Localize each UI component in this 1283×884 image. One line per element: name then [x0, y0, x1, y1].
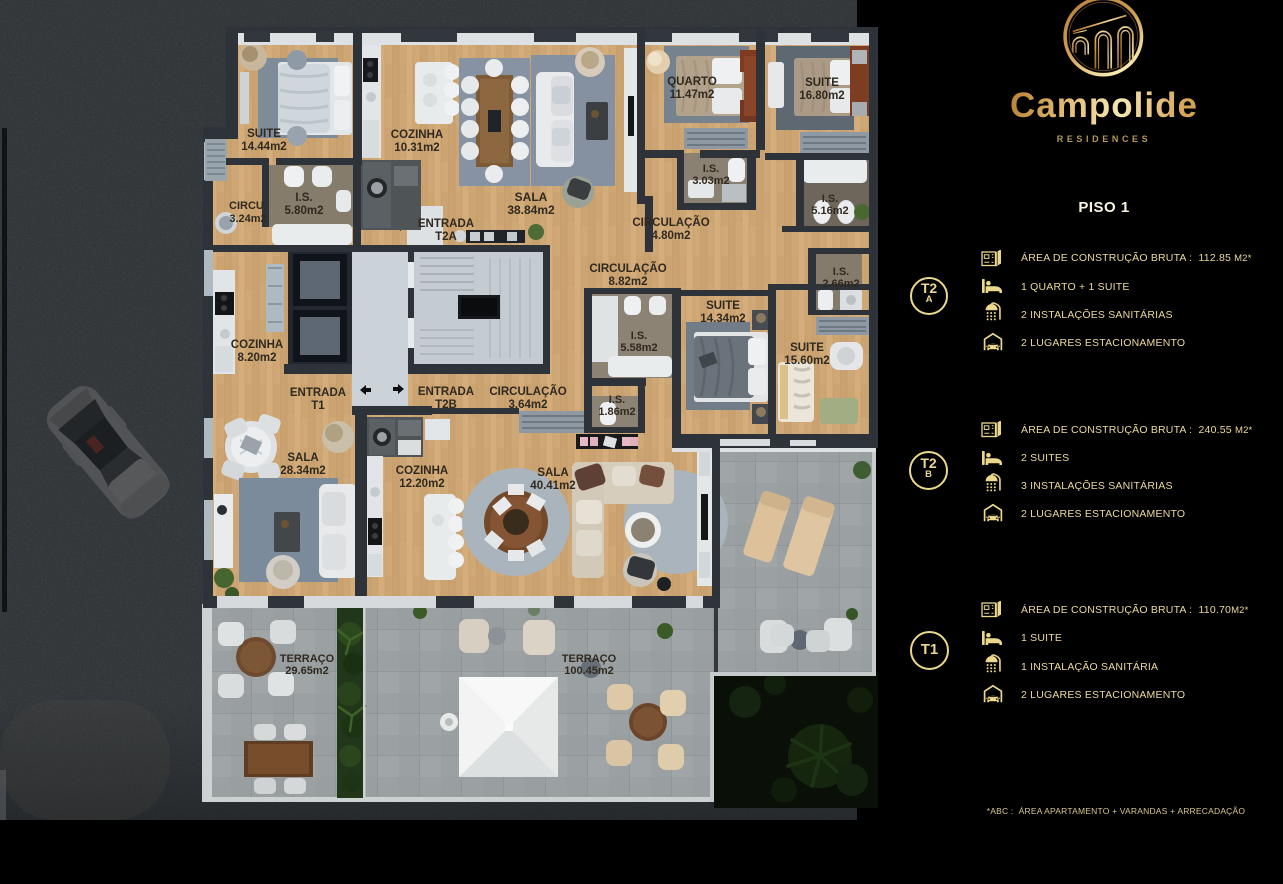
svg-text:I.S.: I.S.	[295, 192, 312, 204]
svg-text:COZINHA: COZINHA	[396, 465, 448, 477]
svg-text:I.S.: I.S.	[822, 193, 839, 205]
svg-text:40.41m2: 40.41m2	[530, 480, 575, 492]
svg-text:3.24m2: 3.24m2	[229, 213, 266, 225]
svg-text:5.80m2: 5.80m2	[284, 205, 323, 217]
svg-text:T2A: T2A	[435, 231, 457, 243]
svg-text:100.45m2: 100.45m2	[564, 665, 614, 677]
svg-text:SALA: SALA	[287, 452, 318, 464]
svg-text:28.34m2: 28.34m2	[280, 465, 325, 477]
svg-text:ENTRADA: ENTRADA	[418, 218, 474, 230]
svg-text:I.S.: I.S.	[703, 163, 720, 175]
svg-text:14.44m2: 14.44m2	[241, 141, 286, 153]
svg-text:16.80m2: 16.80m2	[799, 90, 844, 102]
svg-text:SALA: SALA	[515, 190, 548, 204]
svg-text:29.65m2: 29.65m2	[285, 665, 328, 677]
svg-text:T2B: T2B	[435, 399, 457, 411]
svg-text:SALA: SALA	[537, 467, 568, 479]
svg-text:ENTRADA: ENTRADA	[418, 386, 474, 398]
svg-text:ENTRADA: ENTRADA	[290, 387, 346, 399]
svg-text:15.60m2: 15.60m2	[784, 355, 829, 367]
svg-text:5.58m2: 5.58m2	[620, 342, 657, 354]
svg-text:SUITE: SUITE	[790, 342, 824, 354]
svg-text:8.82m2: 8.82m2	[608, 276, 647, 288]
svg-text:4.80m2: 4.80m2	[651, 230, 690, 242]
svg-text:3.03m2: 3.03m2	[692, 175, 729, 187]
svg-text:I.S.: I.S.	[833, 266, 850, 278]
svg-text:QUARTO: QUARTO	[667, 76, 717, 88]
svg-text:11.47m2: 11.47m2	[670, 89, 715, 101]
svg-text:I.S.: I.S.	[631, 330, 648, 342]
svg-text:CIRCULAÇÃO: CIRCULAÇÃO	[589, 262, 666, 275]
svg-text:1.86m2: 1.86m2	[598, 406, 635, 418]
svg-text:14.34m2: 14.34m2	[700, 313, 745, 325]
svg-text:I.S.: I.S.	[609, 394, 626, 406]
svg-text:SUITE: SUITE	[706, 300, 740, 312]
svg-text:CIRCULAÇÃO: CIRCULAÇÃO	[489, 385, 566, 398]
svg-text:5.16m2: 5.16m2	[811, 205, 848, 217]
svg-text:38.84m2: 38.84m2	[507, 203, 555, 217]
svg-text:3.64m2: 3.64m2	[508, 399, 547, 411]
svg-text:12.20m2: 12.20m2	[399, 478, 444, 490]
svg-text:TERRAÇO: TERRAÇO	[280, 653, 335, 665]
svg-text:T1: T1	[311, 400, 325, 412]
svg-text:CIRCU.: CIRCU.	[229, 200, 267, 212]
svg-text:CIRCULAÇÃO: CIRCULAÇÃO	[632, 216, 709, 229]
svg-text:SUITE: SUITE	[247, 128, 281, 140]
svg-text:8.20m2: 8.20m2	[237, 352, 276, 364]
svg-text:SUITE: SUITE	[805, 77, 839, 89]
svg-text:COZINHA: COZINHA	[391, 129, 443, 141]
svg-text:TERRAÇO: TERRAÇO	[562, 653, 617, 665]
svg-text:10.31m2: 10.31m2	[394, 142, 439, 154]
svg-text:2.66m2: 2.66m2	[822, 278, 859, 290]
svg-text:COZINHA: COZINHA	[231, 339, 283, 351]
